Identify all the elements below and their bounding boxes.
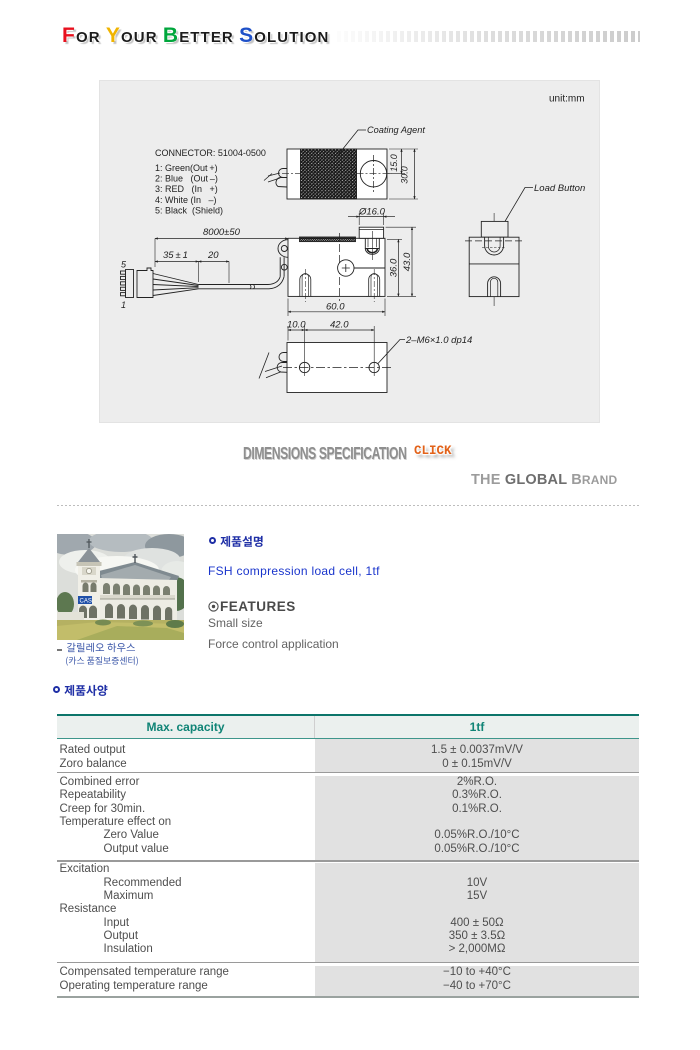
svg-text:2–M6×1.0 dp14: 2–M6×1.0 dp14 [405, 335, 472, 346]
svg-text:35 ± 1: 35 ± 1 [163, 250, 188, 261]
svg-text:5: 5 [121, 260, 127, 270]
svg-text:Ø16.0: Ø16.0 [358, 207, 386, 218]
svg-text:CAS: CAS [80, 599, 92, 605]
svg-text:2: Blue (Out –): 2: Blue (Out –) [155, 174, 218, 184]
svg-text:15.0: 15.0 [389, 154, 399, 172]
svg-text:20: 20 [207, 250, 219, 261]
svg-text:10.0: 10.0 [287, 320, 306, 331]
svg-text:Coating Agent: Coating Agent [367, 125, 425, 135]
svg-text:5: Black (Shield): 5: Black (Shield) [155, 205, 223, 215]
svg-text:60.0: 60.0 [326, 302, 345, 313]
svg-text:CONNECTOR: 51004-0500: CONNECTOR: 51004-0500 [155, 148, 266, 158]
svg-text:42.0: 42.0 [330, 320, 349, 331]
svg-text:1: 1 [121, 300, 126, 310]
svg-text:36.0: 36.0 [389, 258, 400, 277]
svg-text:8000±50: 8000±50 [203, 227, 241, 238]
svg-text:1: Green(Out +): 1: Green(Out +) [155, 163, 218, 173]
svg-text:30.0: 30.0 [400, 166, 410, 184]
svg-text:4: White (In –): 4: White (In –) [155, 195, 217, 205]
svg-text:unit:mm: unit:mm [549, 94, 585, 105]
svg-text:43.0: 43.0 [402, 252, 413, 271]
svg-text:3: RED (In +): 3: RED (In +) [155, 184, 218, 194]
svg-text:Load Button: Load Button [534, 183, 585, 194]
